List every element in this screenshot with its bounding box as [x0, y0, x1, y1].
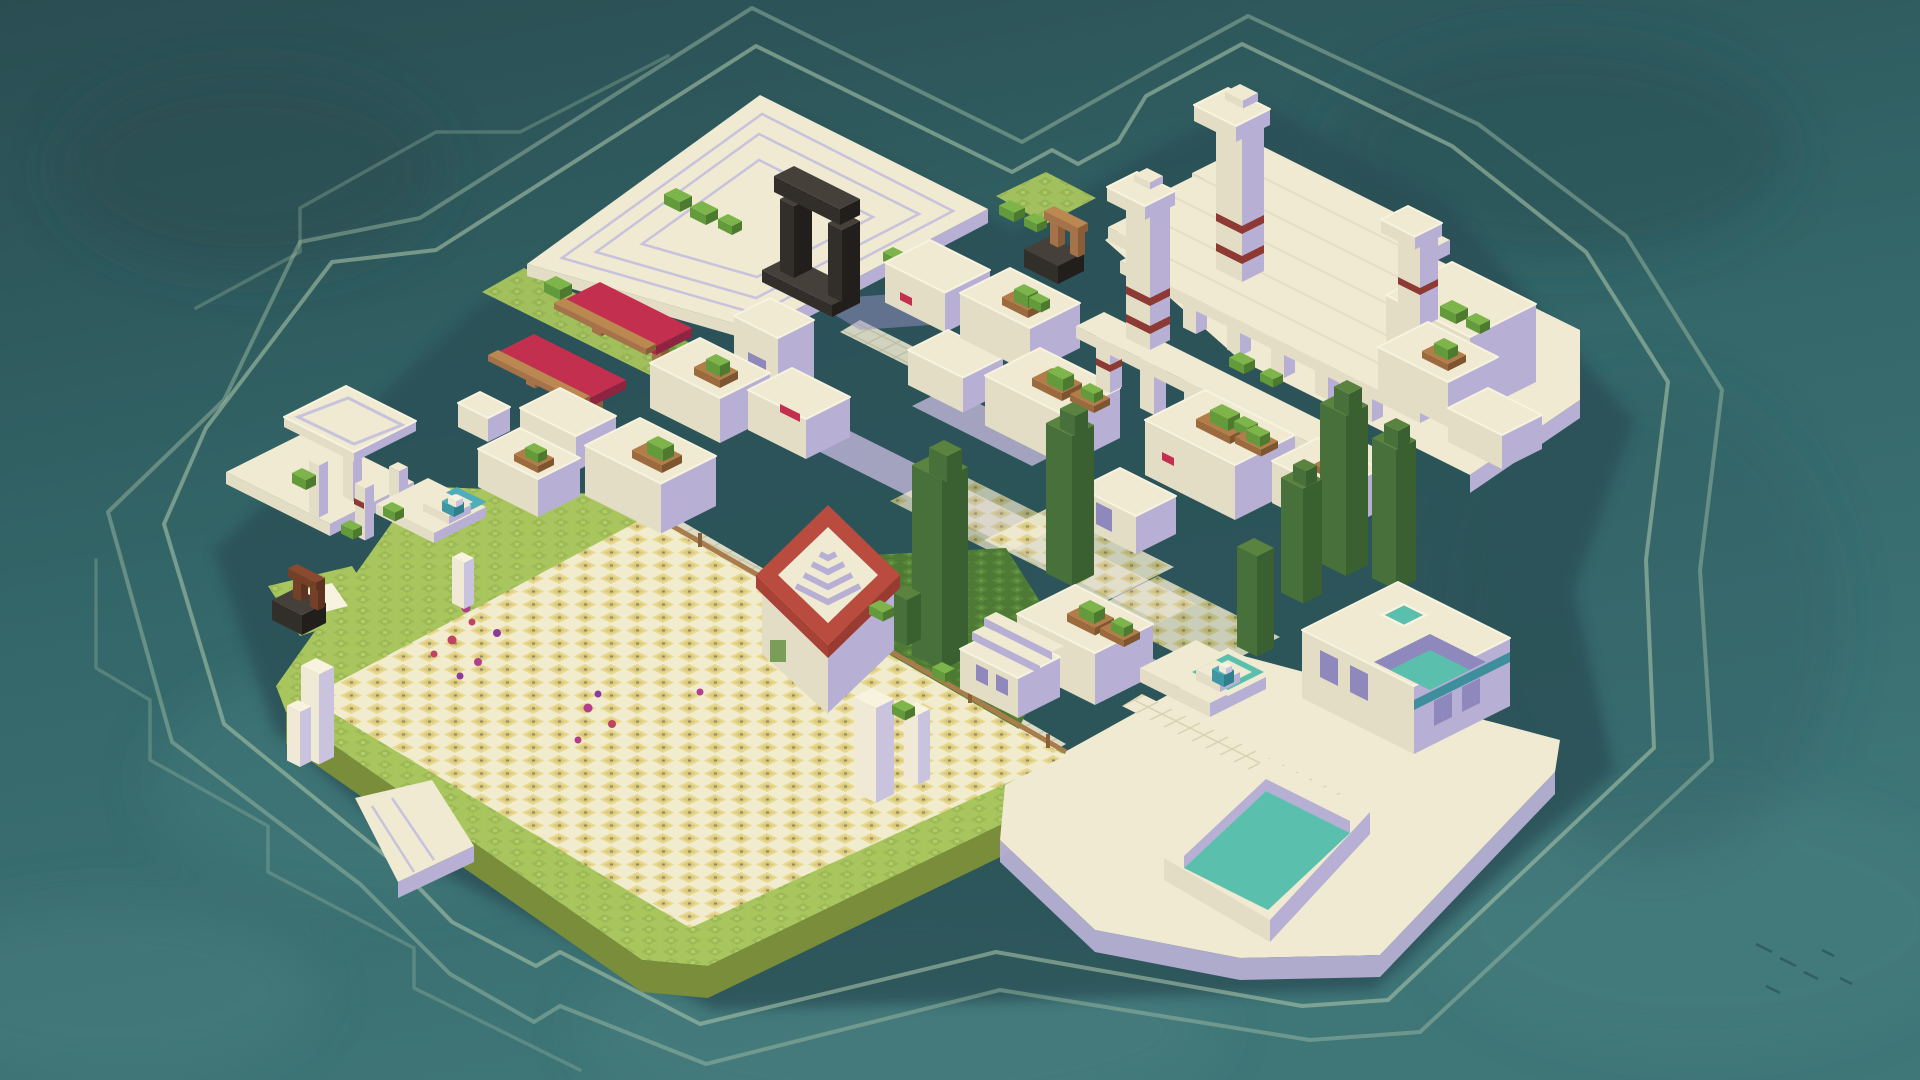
stone-pillar [452, 552, 474, 609]
stone-pillar [287, 700, 311, 767]
cypress-tree [1046, 402, 1094, 586]
monument-leg [828, 214, 860, 302]
game-scene[interactable] [0, 0, 1920, 1080]
cypress-tree [1237, 538, 1274, 657]
wall-vine [770, 640, 786, 662]
cypress-tree [1281, 459, 1322, 604]
game-viewport[interactable] [0, 0, 1920, 1080]
stone-pillar [854, 688, 894, 803]
cypress-tree [1372, 418, 1416, 590]
cypress-tree [891, 585, 921, 646]
cypress-tree [1320, 380, 1368, 576]
